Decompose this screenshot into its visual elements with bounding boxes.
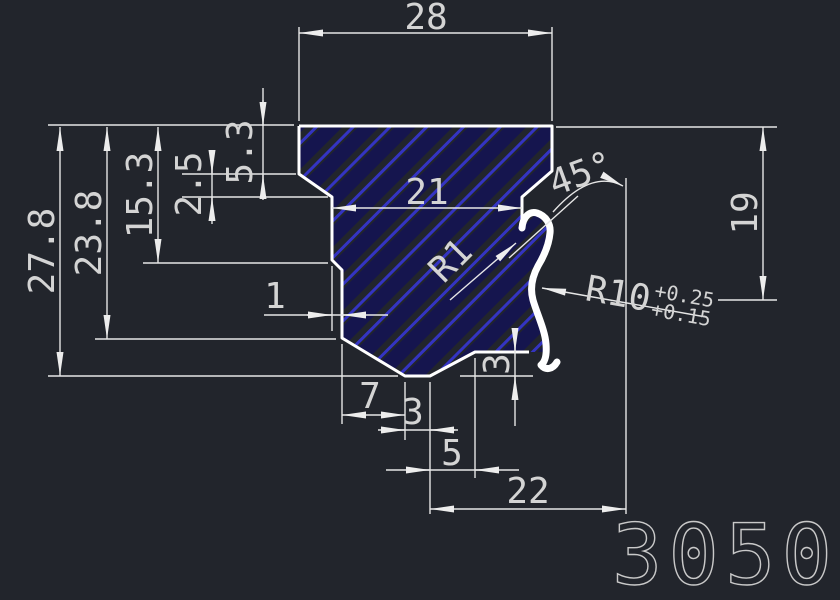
- dim-bottom-flat[interactable]: 3: [378, 392, 458, 433]
- dim-height-to-step-label: 15.3: [120, 152, 161, 239]
- dim-chamfer-angle[interactable]: 45°: [544, 144, 623, 212]
- dim-lip-step-height-label: 3: [477, 353, 518, 375]
- dim-crown-height[interactable]: 5.3: [220, 88, 263, 200]
- dim-height-total-label: 27.8: [22, 208, 63, 295]
- dim-height-total[interactable]: 27.8: [22, 127, 63, 376]
- dim-step-offset-label: 1: [264, 276, 286, 317]
- drawing-canvas[interactable]: 28 21 27.8 23.8 15.3 2.5 5.3 19 1: [0, 0, 840, 600]
- dim-crown-height-label: 5.3: [220, 119, 261, 184]
- dim-bottom-chamfer-label: 5: [441, 433, 463, 474]
- section-hatch[interactable]: [280, 110, 570, 390]
- part-number: 3050: [612, 506, 838, 600]
- dim-width-top[interactable]: 28: [299, 0, 552, 38]
- dim-width-mid-label: 21: [405, 172, 448, 213]
- groove-radius-label: R10: [582, 268, 653, 320]
- hatch-fill: [280, 110, 570, 390]
- dim-bottom-seg-left[interactable]: 7: [342, 376, 405, 417]
- dim-bottom-chamfer[interactable]: 5: [386, 433, 519, 474]
- dim-chamfer-angle-label: 45°: [544, 144, 619, 205]
- dim-groove-depth-label: 19: [725, 191, 766, 234]
- cad-model-space[interactable]: 28 21 27.8 23.8 15.3 2.5 5.3 19 1: [0, 0, 840, 600]
- dim-width-bottom-label: 22: [506, 471, 549, 512]
- dim-bottom-flat-label: 3: [402, 392, 424, 433]
- dim-height-to-chamfer-label: 23.8: [69, 190, 110, 277]
- dim-height-to-step[interactable]: 15.3: [120, 127, 161, 263]
- leader-groove-radius[interactable]: R10 +0.25 +0.15: [542, 267, 716, 332]
- dim-taper-height-label: 2.5: [169, 151, 210, 216]
- dim-width-top-label: 28: [404, 0, 447, 38]
- dim-height-to-chamfer[interactable]: 23.8: [69, 127, 110, 339]
- dim-width-bottom[interactable]: 22: [430, 471, 626, 512]
- dim-groove-depth[interactable]: 19: [725, 127, 766, 300]
- dim-taper-height[interactable]: 2.5: [169, 150, 212, 224]
- dim-bottom-seg-left-label: 7: [359, 376, 381, 417]
